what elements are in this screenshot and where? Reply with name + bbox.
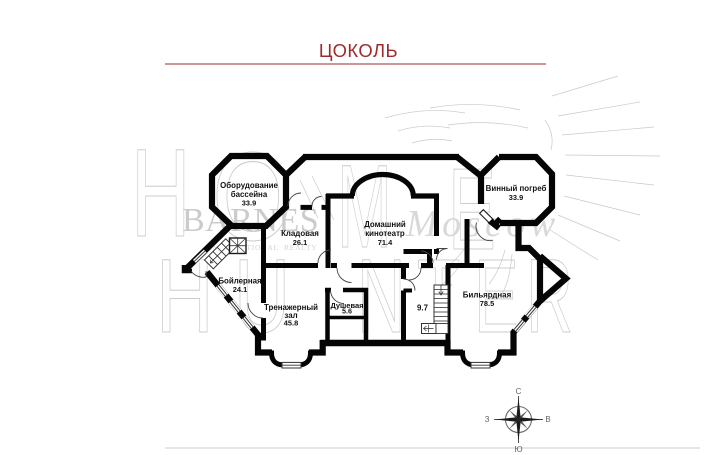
svg-text:9.7: 9.7: [417, 304, 429, 313]
svg-text:33.9: 33.9: [242, 199, 256, 208]
svg-text:Кладовая: Кладовая: [281, 229, 319, 238]
svg-text:71.4: 71.4: [378, 238, 393, 247]
svg-text:45.8: 45.8: [284, 319, 298, 328]
svg-text:24.1: 24.1: [233, 285, 247, 294]
svg-text:ЦОКОЛЬ: ЦОКОЛЬ: [319, 40, 398, 61]
svg-text:С: С: [516, 387, 522, 396]
svg-text:78.5: 78.5: [480, 299, 494, 308]
svg-text:Винный погреб: Винный погреб: [486, 184, 547, 193]
svg-text:Домашний: Домашний: [364, 220, 406, 229]
svg-text:кинотеатр: кинотеатр: [365, 229, 405, 238]
svg-text:33.9: 33.9: [509, 193, 523, 202]
svg-text:26.1: 26.1: [293, 238, 307, 247]
svg-text:Оборудование: Оборудование: [220, 181, 278, 190]
svg-text:З: З: [485, 415, 490, 424]
svg-text:Ю: Ю: [514, 445, 522, 454]
svg-text:В: В: [545, 415, 550, 424]
svg-text:5.6: 5.6: [342, 307, 352, 316]
